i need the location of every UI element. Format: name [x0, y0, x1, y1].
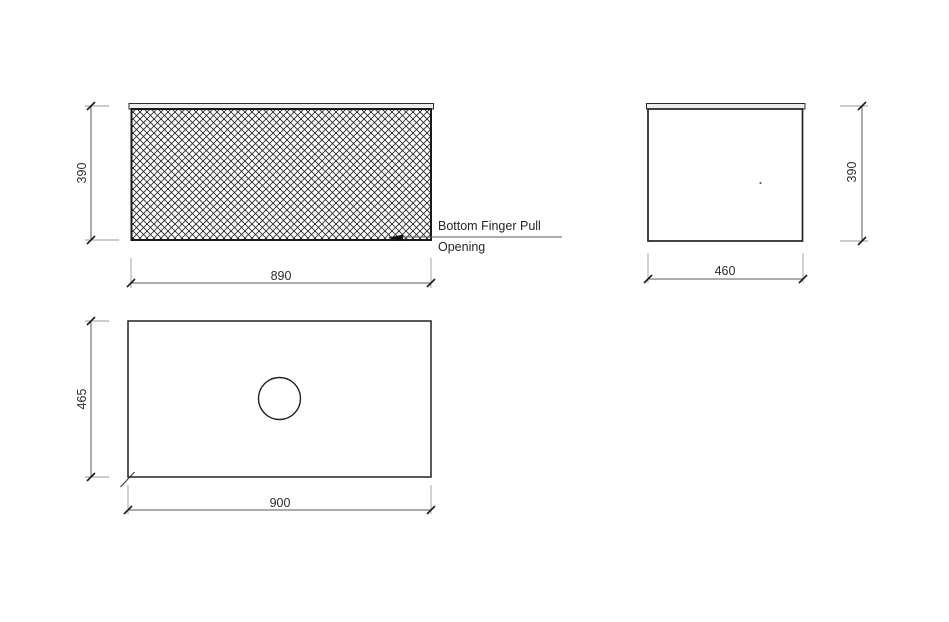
front-elevation-view: 390 890 Bottom Finger Pull Opening: [75, 102, 562, 288]
dim-front-height: 390: [75, 102, 119, 244]
dim-plan-depth: 465: [75, 317, 109, 481]
side-panel-outline: [648, 109, 803, 241]
plan-view: 465 900: [75, 317, 435, 514]
finger-pull-label-line2: Opening: [438, 240, 485, 254]
dim-front-width: 890: [127, 258, 435, 288]
cad-drawing-canvas: 390 890 Bottom Finger Pull Opening: [0, 0, 949, 622]
plan-top-outline: [128, 321, 431, 477]
dim-side-width-label: 460: [715, 264, 736, 278]
dim-plan-width: 900: [124, 485, 435, 514]
panel-dot-mark: [759, 182, 761, 184]
dim-plan-width-label: 900: [270, 496, 291, 510]
dim-front-width-label: 890: [271, 269, 292, 283]
dim-plan-depth-label: 465: [75, 389, 89, 410]
dim-side-height: 390: [840, 102, 868, 245]
finger-pull-label-line1: Bottom Finger Pull: [438, 219, 541, 233]
cabinet-technical-drawing: 390 890 Bottom Finger Pull Opening: [0, 0, 949, 622]
dim-side-width: 460: [644, 253, 807, 283]
front-door-panel-hatched: [132, 109, 432, 240]
side-elevation-view: 390 460: [644, 102, 868, 283]
dim-side-height-label: 390: [845, 162, 859, 183]
dim-front-height-label: 390: [75, 163, 89, 184]
